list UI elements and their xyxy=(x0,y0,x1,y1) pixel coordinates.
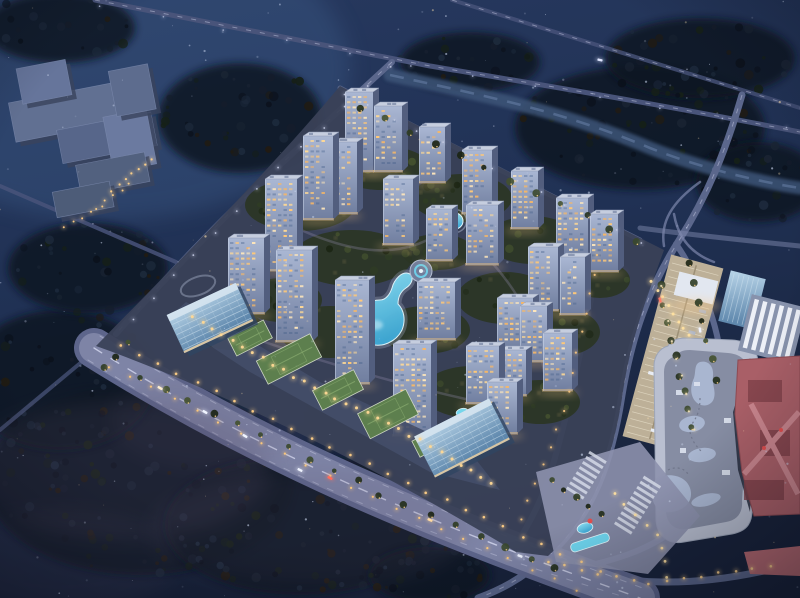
aerial-night-render xyxy=(0,0,800,598)
vignette xyxy=(0,0,800,598)
render-canvas xyxy=(0,0,800,598)
